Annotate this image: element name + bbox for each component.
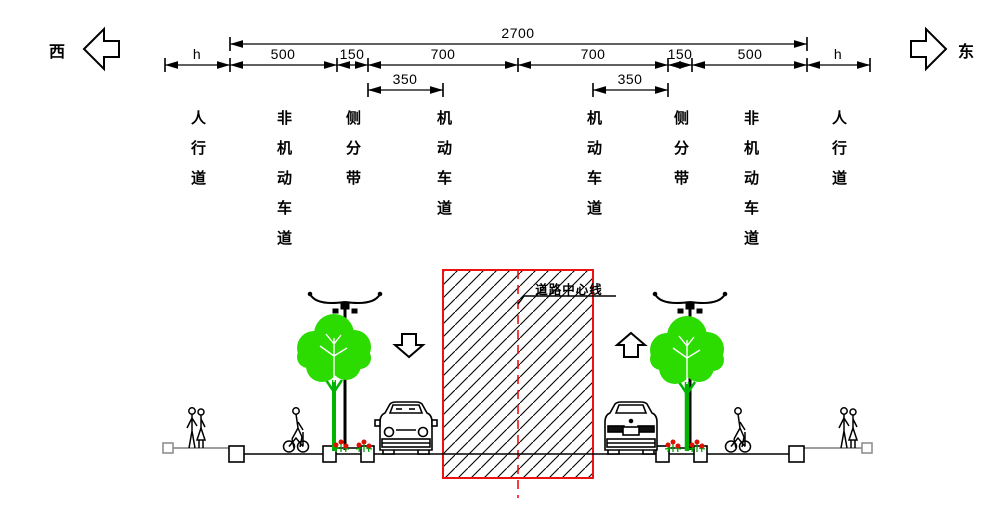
east-label: 东 (958, 38, 974, 62)
lane-label-motor-lane-east: 机动车道 (583, 110, 603, 230)
dim-sidewalk-west: h (193, 46, 201, 62)
east-arrow-icon (911, 29, 946, 69)
traffic-direction-up-arrow-icon (617, 333, 645, 357)
dim-median-west: 150 (340, 46, 365, 62)
dim-motor-lane-west: 700 (431, 46, 456, 62)
cyclist-east (726, 408, 751, 452)
tree-east (650, 316, 724, 451)
dim-median-east: 150 (668, 46, 693, 62)
west-label: 西 (49, 38, 65, 62)
lane-label-motor-lane-west: 机动车道 (433, 110, 453, 230)
curb-west (229, 446, 244, 462)
drawing-linework (0, 0, 1003, 530)
lane-label-median-west: 侧分带 (342, 110, 362, 200)
road-centerline-label: 道路中心线 (535, 279, 603, 298)
dim-motor-lane-east: 700 (581, 46, 606, 62)
lane-label-sidewalk-east: 人行道 (828, 110, 848, 200)
dim-half-lane-east: 350 (618, 71, 643, 87)
road-cross-section-drawing: 西 东 2700 h 500 150 700 700 150 500 h 350… (0, 0, 1003, 530)
sidewalk-end-block-west (163, 443, 173, 453)
car-front-west (375, 402, 437, 454)
traffic-direction-down-arrow-icon (395, 334, 423, 357)
tree-west (297, 314, 371, 451)
dim-total: 2700 (501, 25, 534, 41)
cyclist-west (284, 408, 309, 452)
curb-east (789, 446, 804, 462)
car-rear-east (605, 402, 657, 454)
lane-label-bike-lane-east: 非机动车道 (740, 110, 760, 260)
construction-hatch-area (443, 270, 593, 498)
dim-half-lane-west: 350 (393, 71, 418, 87)
dim-bike-lane-east: 500 (738, 46, 763, 62)
west-arrow-icon (84, 29, 119, 69)
pedestrians-east (839, 408, 857, 448)
sidewalk-end-block-east (862, 443, 872, 453)
lane-label-sidewalk-west: 人行道 (187, 110, 207, 200)
dim-bike-lane-west: 500 (271, 46, 296, 62)
lane-label-bike-lane-west: 非机动车道 (273, 110, 293, 260)
lane-label-median-east: 侧分带 (670, 110, 690, 200)
dim-sidewalk-east: h (834, 46, 842, 62)
pedestrians-west (187, 408, 205, 448)
